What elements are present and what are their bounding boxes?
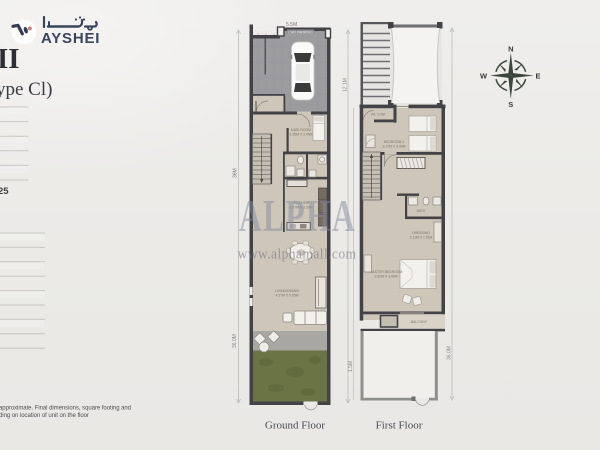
svg-text:www.alphamall.com: www.alphamall.com [238, 246, 357, 262]
svg-text:approximate. Final dimensions,: approximate. Final dimensions, square fo… [0, 406, 131, 412]
svg-text:MASTER BEDROOM: MASTER BEDROOM [370, 270, 403, 274]
svg-text:12.1M: 12.1M [343, 78, 349, 92]
svg-text:CAR PARKING: CAR PARKING [288, 30, 313, 34]
svg-text:2.11M X 1.51M: 2.11M X 1.51M [410, 236, 433, 240]
svg-text:ype Cl): ype Cl) [0, 79, 52, 100]
svg-text:36M: 36M [233, 168, 239, 178]
svg-text:S: S [508, 100, 513, 109]
svg-text:BALCONY: BALCONY [411, 320, 428, 324]
svg-text:ding on location of unit on th: ding on location of unit on the floor [0, 413, 89, 419]
svg-text:E: E [535, 72, 540, 81]
svg-text:W: W [480, 72, 488, 81]
svg-text:3.17M X 3.40M: 3.17M X 3.40M [383, 145, 406, 149]
svg-text:1.95M X 3.40M: 1.95M X 3.40M [290, 133, 313, 137]
svg-text:LIVING/DINING: LIVING/DINING [275, 289, 299, 293]
svg-text:3.62M X 3.40M: 3.62M X 3.40M [375, 275, 398, 279]
svg-text:AYSHEI: AYSHEI [41, 30, 100, 47]
svg-text:4.57M X 5.95M: 4.57M X 5.95M [276, 294, 299, 298]
svg-text:N: N [508, 45, 513, 54]
svg-text:5.5M: 5.5M [286, 22, 297, 28]
svg-text:Ground Floor: Ground Floor [265, 420, 326, 432]
svg-text:II: II [0, 43, 20, 75]
svg-text:25: 25 [0, 186, 9, 197]
svg-text:DRESSING: DRESSING [412, 231, 430, 235]
svg-text:36.0M: 36.0M [447, 346, 453, 360]
svg-text:1.5M: 1.5M [348, 361, 354, 372]
svg-text:MAID ROOM: MAID ROOM [291, 128, 311, 132]
svg-text:36.0M: 36.0M [232, 334, 238, 348]
svg-text:First Floor: First Floor [376, 420, 423, 432]
svg-text:BATH: BATH [417, 209, 426, 213]
svg-text:PA. 2.2M: PA. 2.2M [371, 113, 385, 117]
svg-text:BEDROOM 2: BEDROOM 2 [384, 140, 404, 144]
svg-text:ALPHA: ALPHA [239, 192, 356, 242]
